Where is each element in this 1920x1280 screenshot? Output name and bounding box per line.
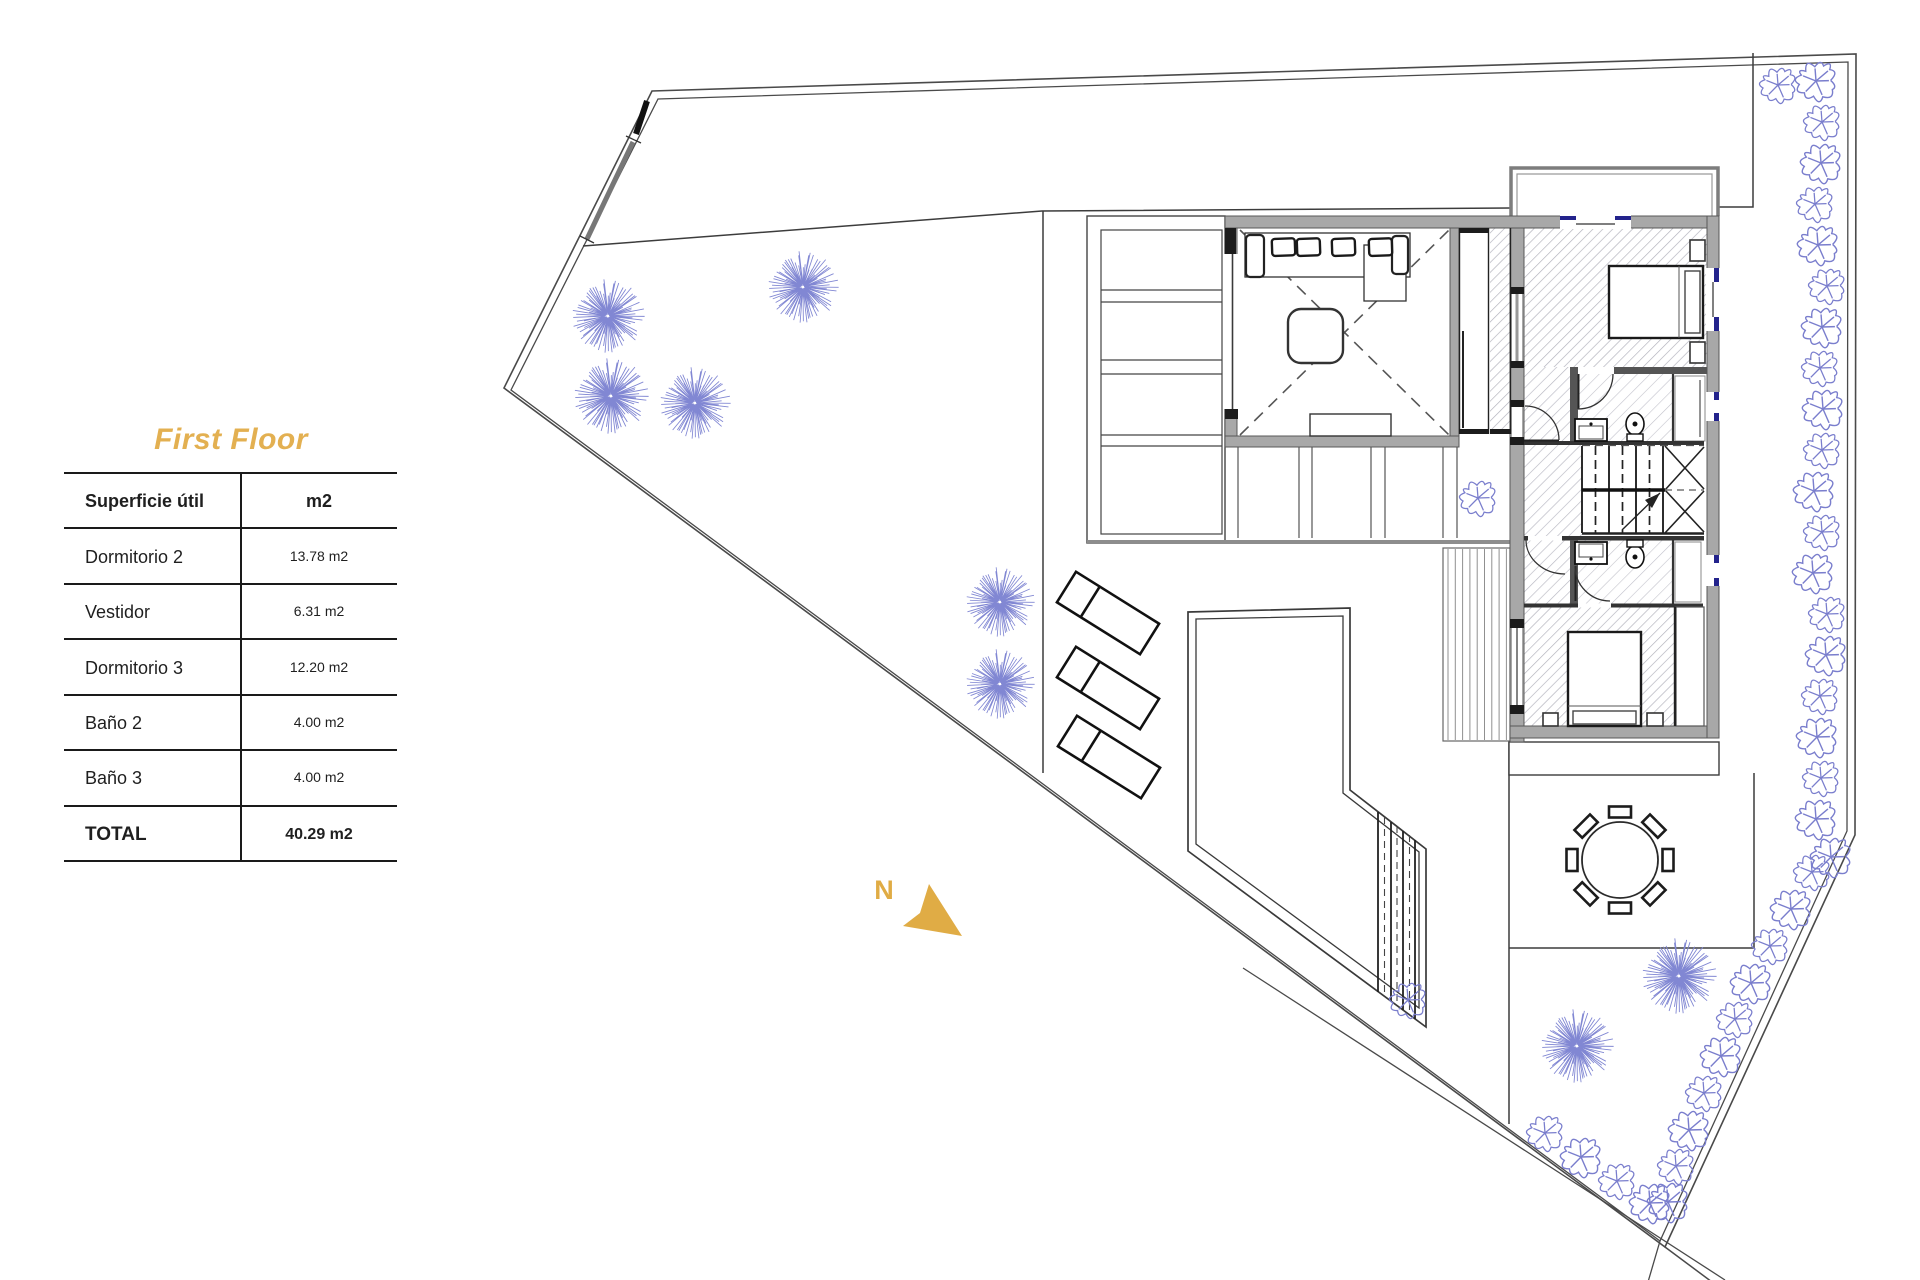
- svg-text:Dormitorio 2: Dormitorio 2: [85, 547, 183, 567]
- svg-text:6.31 m2: 6.31 m2: [294, 603, 345, 619]
- svg-text:TOTAL: TOTAL: [85, 824, 147, 845]
- svg-text:4.00 m2: 4.00 m2: [294, 714, 345, 730]
- svg-text:Baño 3: Baño 3: [85, 768, 142, 788]
- svg-text:Baño 2: Baño 2: [85, 713, 142, 733]
- svg-text:4.00 m2: 4.00 m2: [294, 769, 345, 785]
- svg-text:N: N: [874, 875, 894, 905]
- svg-text:Superficie útil: Superficie útil: [85, 491, 204, 511]
- svg-text:12.20 m2: 12.20 m2: [290, 659, 349, 675]
- svg-text:First Floor: First Floor: [154, 423, 310, 456]
- svg-text:13.78 m2: 13.78 m2: [290, 548, 349, 564]
- svg-text:40.29 m2: 40.29 m2: [285, 826, 353, 843]
- svg-text:m2: m2: [306, 491, 332, 511]
- svg-text:Dormitorio 3: Dormitorio 3: [85, 658, 183, 678]
- svg-text:Vestidor: Vestidor: [85, 602, 150, 622]
